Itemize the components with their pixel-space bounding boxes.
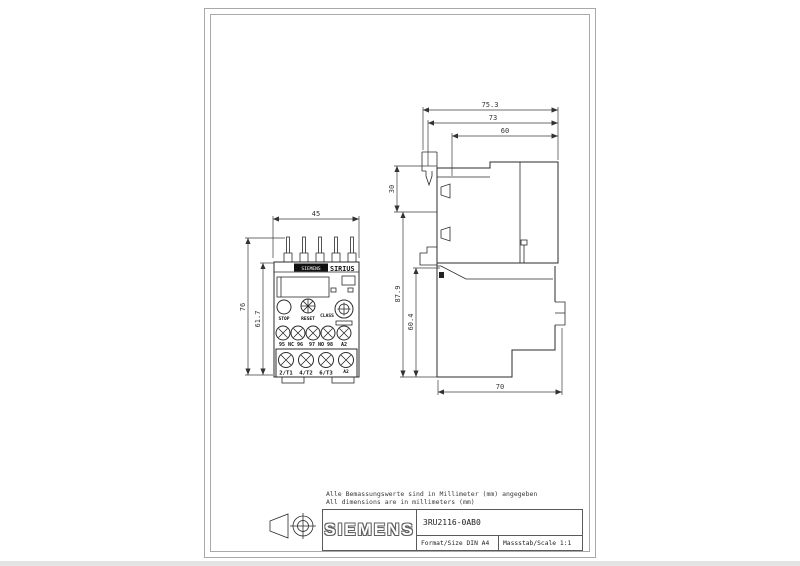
dim-depth-front: 60 (501, 127, 509, 135)
main-terminal-label-a2: A2 (343, 369, 349, 375)
rating-label-window (277, 277, 329, 297)
part-number-cell: 3RU2116-0AB0 (416, 510, 582, 536)
main-terminal-label-t2: 4/T2 (299, 371, 312, 377)
scale-cell: Massstab/Scale 1:1 (498, 536, 584, 550)
front-foot-right (332, 377, 354, 383)
dim-depth-total: 75.3 (482, 101, 499, 109)
format-cell: Format/Size DIN A4 (416, 536, 498, 550)
format-label: Format/Size DIN A4 (421, 540, 489, 547)
indicator-window-right (348, 288, 353, 292)
reset-button (301, 299, 315, 313)
dim-front-height-total: 76 (239, 303, 247, 311)
note-line-en: All dimensions are in millimeters (mm) (326, 498, 537, 506)
test-slide (521, 240, 527, 245)
reset-label: RESET (301, 316, 315, 322)
sheet-inner-border (211, 15, 590, 552)
first-angle-projection-icon (270, 513, 316, 539)
scale-label: Massstab/Scale 1:1 (503, 540, 571, 547)
side-view: 75.3 73 60 30 87.9 60.4 70 (388, 101, 565, 395)
aux-terminal-screws (276, 326, 351, 340)
setting-window (342, 276, 355, 285)
snap-pin-lower (441, 227, 450, 241)
front-dimensions: 45 76 61.7 (239, 210, 359, 375)
front-view: SIEMENS SIRIUS STOP RESET CLASS (239, 210, 359, 383)
title-block-logo-cell: SIEMENS (323, 510, 416, 550)
side-dimensions: 75.3 73 60 30 87.9 60.4 70 (388, 101, 562, 395)
main-terminal-label-t3: 6/T3 (319, 371, 332, 377)
aux-terminal-label-no: 97 NO 98 (309, 342, 333, 348)
drawing-page: SIEMENS SIRIUS STOP RESET CLASS (0, 0, 800, 566)
current-adjust-dial (335, 300, 353, 325)
dim-front-height-upper: 61.7 (254, 311, 262, 328)
dim-front-width: 45 (312, 210, 320, 218)
top-mounting-hook (422, 152, 437, 185)
indicator-window-left (331, 288, 336, 292)
front-view-pins (284, 237, 356, 262)
page-bottom-edge (0, 561, 800, 566)
main-terminal-label-t1: 2/T1 (279, 371, 293, 377)
front-series-label: SIRIUS (330, 265, 355, 273)
front-foot-left (282, 377, 304, 383)
part-number: 3RU2116-0AB0 (423, 518, 481, 527)
dim-width-bottom: 70 (496, 383, 504, 391)
main-terminal-screws (279, 353, 354, 368)
side-front-recess (437, 266, 553, 279)
class-label: CLASS (320, 313, 334, 319)
dimension-notes: Alle Bemassungswerte sind in Millimeter … (326, 490, 537, 506)
siemens-logo: SIEMENS (324, 520, 415, 540)
note-line-de: Alle Bemassungswerte sind in Millimeter … (326, 490, 537, 498)
side-latch-block (439, 272, 444, 278)
dim-height-top: 30 (388, 185, 396, 193)
dim-height-total: 87.9 (394, 286, 402, 303)
side-lower-body (437, 263, 555, 377)
snap-pin-upper (441, 184, 450, 198)
side-terminal-bump (555, 302, 565, 325)
stop-button (277, 300, 291, 314)
front-brand-label: SIEMENS (301, 266, 321, 272)
dim-depth-housing: 73 (489, 114, 497, 122)
aux-terminal-label-a2: A2 (341, 342, 347, 348)
stop-label: STOP (278, 316, 289, 322)
dim-height-lower: 60.4 (407, 314, 415, 331)
aux-terminal-label-nc: 95 NC 96 (279, 342, 303, 348)
title-block: SIEMENS 3RU2116-0AB0 Format/Size DIN A4 … (322, 509, 583, 551)
dimension-drawing: SIEMENS SIRIUS STOP RESET CLASS (0, 0, 800, 566)
bottom-mounting-hook (420, 247, 437, 265)
